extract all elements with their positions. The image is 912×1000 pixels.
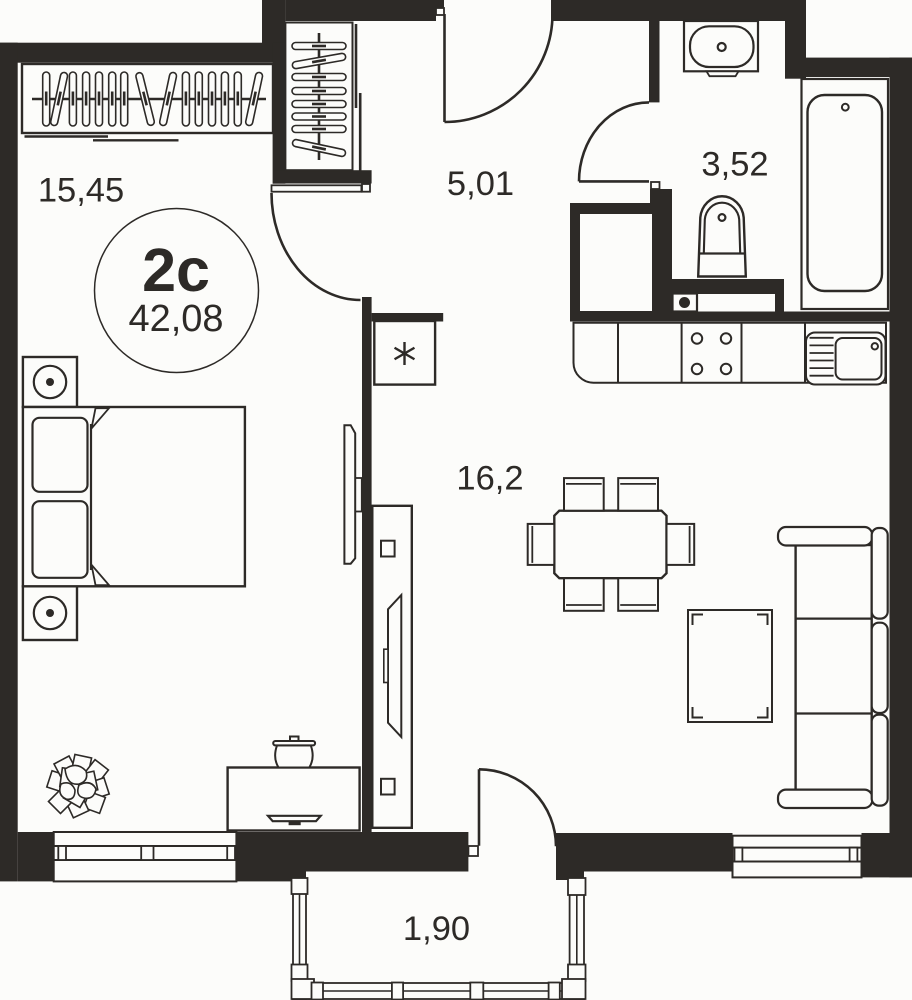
svg-text:2c: 2c xyxy=(142,236,210,304)
svg-text:16,2: 16,2 xyxy=(456,460,523,498)
svg-text:42,08: 42,08 xyxy=(128,298,223,340)
svg-text:5,01: 5,01 xyxy=(447,165,514,203)
svg-text:15,45: 15,45 xyxy=(38,172,124,210)
svg-text:1,90: 1,90 xyxy=(403,910,470,948)
svg-text:3,52: 3,52 xyxy=(701,146,768,184)
